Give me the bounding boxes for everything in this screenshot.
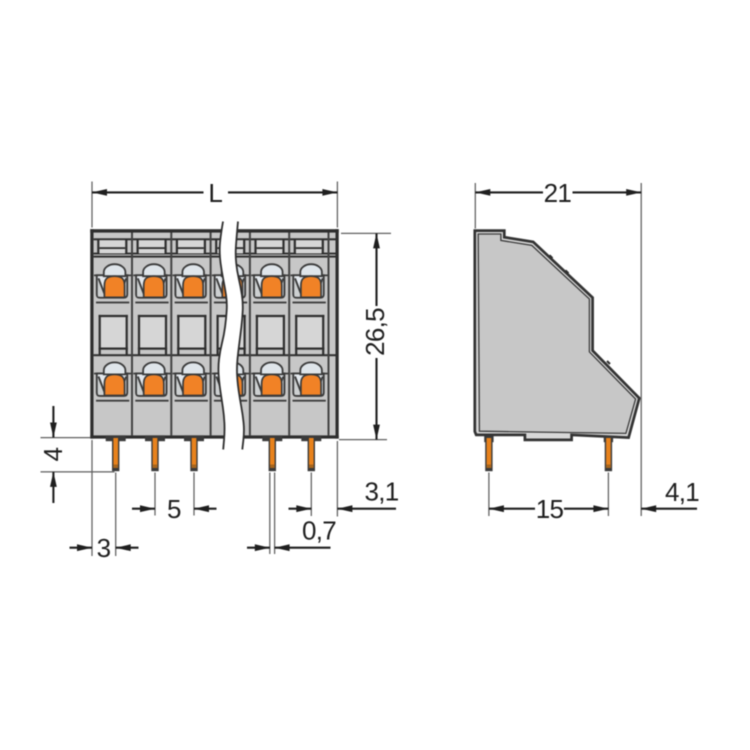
svg-text:4: 4: [38, 447, 68, 461]
svg-text:L: L: [208, 178, 222, 208]
svg-text:26,5: 26,5: [360, 308, 390, 356]
svg-text:21: 21: [544, 178, 572, 208]
svg-text:5: 5: [167, 494, 181, 524]
svg-text:4,1: 4,1: [665, 477, 699, 507]
svg-text:15: 15: [536, 494, 564, 524]
svg-text:3,1: 3,1: [364, 476, 398, 506]
svg-text:0,7: 0,7: [302, 516, 336, 546]
svg-text:3: 3: [97, 533, 111, 563]
